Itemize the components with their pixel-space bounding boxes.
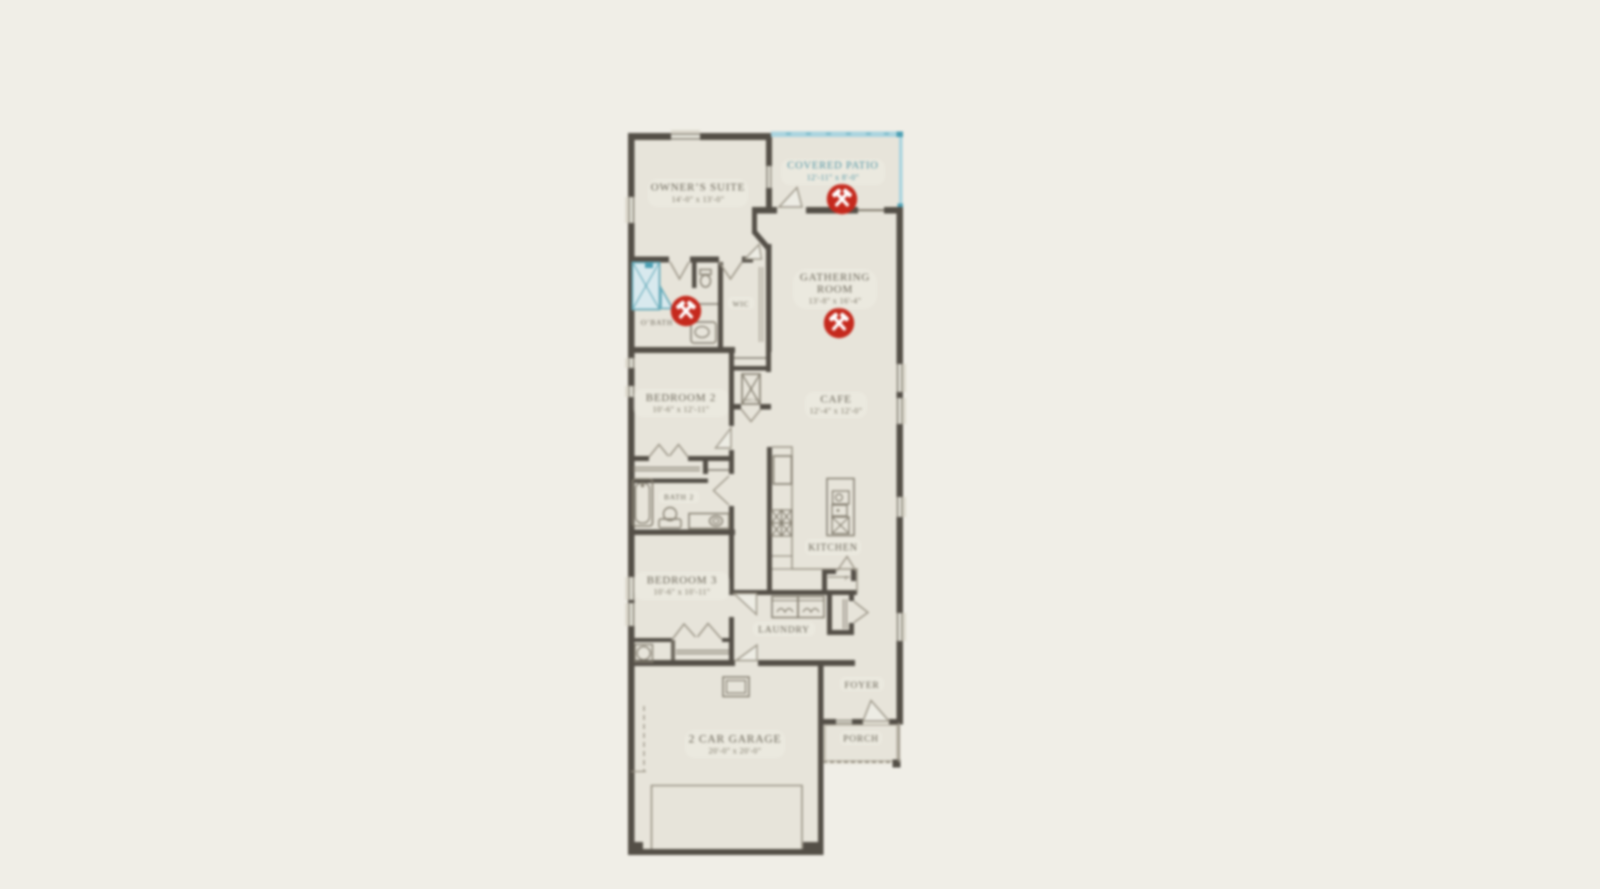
svg-text:2 CAR GARAGE: 2 CAR GARAGE [689, 734, 782, 746]
svg-text:BEDROOM 3: BEDROOM 3 [647, 575, 717, 587]
svg-text:10'-6" x 10'-11": 10'-6" x 10'-11" [654, 588, 711, 597]
svg-text:PORCH: PORCH [843, 735, 879, 745]
svg-text:12'-4" x 12'-0": 12'-4" x 12'-0" [810, 407, 863, 416]
svg-text:ROOM: ROOM [817, 284, 853, 296]
svg-text:FOYER: FOYER [844, 681, 879, 691]
svg-text:KITCHEN: KITCHEN [808, 543, 857, 554]
svg-text:OWNER’S SUITE: OWNER’S SUITE [651, 182, 745, 194]
svg-text:14'-0" x 13'-0": 14'-0" x 13'-0" [672, 195, 725, 204]
svg-text:P: P [845, 577, 848, 582]
svg-text:O’BATH: O’BATH [641, 318, 673, 327]
svg-text:BATH 2: BATH 2 [664, 493, 694, 502]
svg-text:WIC: WIC [733, 300, 750, 309]
svg-text:COVERED PATIO: COVERED PATIO [787, 161, 878, 172]
svg-text:12'-11" x 8'-0": 12'-11" x 8'-0" [807, 173, 859, 182]
svg-text:LAUNDRY: LAUNDRY [758, 626, 810, 636]
svg-text:10'-6" x 12'-11": 10'-6" x 12'-11" [653, 405, 710, 414]
svg-text:MECH: MECH [744, 398, 758, 403]
svg-text:13'-8" x 16'-4": 13'-8" x 16'-4" [809, 297, 862, 306]
svg-text:CAFE: CAFE [820, 394, 851, 406]
svg-text:GATHERING: GATHERING [800, 272, 870, 284]
svg-text:20'-0" x 20'-0": 20'-0" x 20'-0" [709, 747, 762, 756]
svg-text:BEDROOM 2: BEDROOM 2 [646, 392, 716, 404]
